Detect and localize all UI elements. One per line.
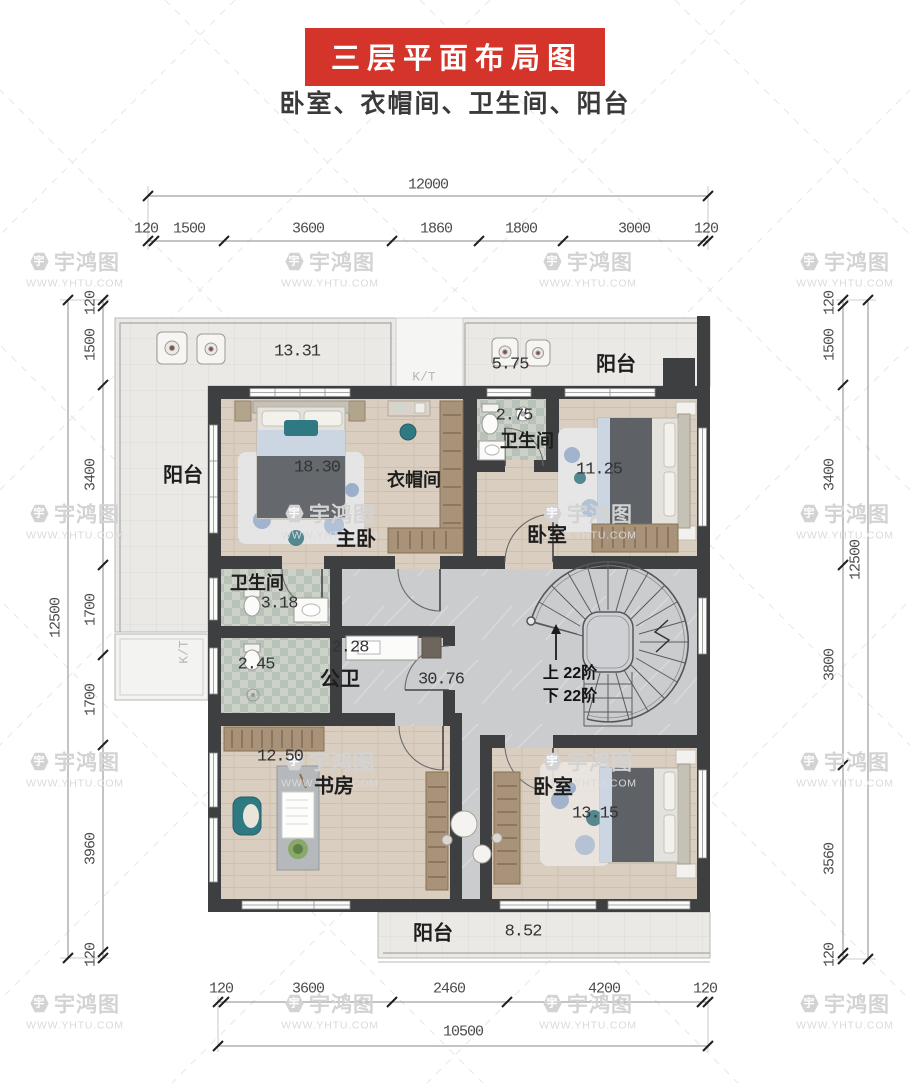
area-balcony-left: 13.31: [274, 343, 320, 362]
area-balcony-top: 5.75: [492, 356, 529, 375]
kt-platform: [115, 634, 208, 700]
dim-left-seg: 3400: [83, 459, 100, 491]
kt-label-top: K/T: [412, 370, 435, 385]
room-label-cloak: 衣帽间: [387, 466, 441, 492]
dim-left-seg: 1500: [83, 329, 100, 361]
dim-right-seg: 3400: [822, 459, 839, 491]
area-bath-mid: 3.18: [261, 595, 298, 614]
dim-right-seg: 120: [822, 943, 839, 967]
dim-top-seg: 1860: [420, 221, 452, 238]
area-bed-bottom: 13.15: [572, 805, 618, 824]
dim-bottom-seg: 120: [693, 981, 717, 998]
dim-right-seg: 120: [822, 291, 839, 315]
dim-top-seg: 120: [134, 221, 158, 238]
floorplan-drawing: [0, 0, 910, 1083]
dim-left-seg: 120: [83, 291, 100, 315]
dim-right-seg: 3800: [822, 649, 839, 681]
dim-left-overall: 12500: [48, 598, 65, 638]
bed-headboard: [678, 764, 690, 864]
room-label-bath-top: 卫生间: [500, 427, 554, 453]
shelf: [426, 772, 448, 890]
area-master: 18.30: [294, 459, 340, 478]
dim-right-seg: 1500: [822, 329, 839, 361]
area-shower-room: 2.45: [238, 656, 275, 675]
bed-blanket: [612, 768, 654, 862]
stairs-down-label: 下 22阶: [543, 682, 597, 706]
wardrobe: [494, 772, 520, 884]
shower-room-floor: [221, 638, 330, 713]
area-pub-bath: 2.28: [332, 639, 369, 658]
dim-top-seg: 3000: [618, 221, 650, 238]
area-bed-right: 11.25: [576, 461, 622, 480]
page-title: 三层平面布局图: [305, 28, 605, 86]
dim-left-seg: 1700: [83, 594, 100, 626]
dim-top-seg: 3600: [292, 221, 324, 238]
dim-top-overall: 12000: [408, 177, 448, 194]
dim-left-seg: 1700: [83, 684, 100, 716]
room-label-study: 书房: [314, 770, 354, 799]
nightstand: [235, 401, 251, 421]
room-label-balcony-top: 阳台: [596, 348, 636, 377]
room-label-bed-right: 卧室: [527, 519, 567, 548]
teal-throw: [284, 420, 318, 436]
dim-right-overall: 12500: [848, 540, 865, 580]
dim-bottom-seg: 4200: [588, 981, 620, 998]
room-label-pub-bath: 公卫: [320, 663, 360, 692]
area-balcony-bottom: 8.52: [505, 923, 542, 942]
bed-headboard: [678, 414, 690, 528]
dim-top-seg: 1800: [505, 221, 537, 238]
area-study: 12.50: [257, 748, 303, 767]
floorplan-page: 宇宇鸿图WWW.YHTU.COM 宇宇鸿图WWW.YHTU.COM 宇宇鸿图WW…: [0, 0, 910, 1083]
area-bath-top: 2.75: [496, 407, 533, 426]
dim-bottom-seg: 120: [209, 981, 233, 998]
room-label-bath-mid: 卫生间: [230, 569, 284, 595]
page-subtitle: 卧室、衣帽间、卫生间、阳台: [279, 84, 630, 120]
room-label-balcony-bottom: 阳台: [413, 917, 453, 946]
room-label-balcony-left: 阳台: [163, 459, 203, 488]
dim-top-seg: 1500: [173, 221, 205, 238]
dim-left-seg: 3960: [83, 833, 100, 865]
dim-top-seg: 120: [694, 221, 718, 238]
dim-bottom-seg: 2460: [433, 981, 465, 998]
room-label-bed-bottom: 卧室: [533, 771, 573, 800]
dim-bottom-overall: 10500: [443, 1024, 483, 1041]
nightstand: [349, 401, 365, 421]
area-hall: 30.76: [418, 671, 464, 690]
kt-label-left: K/T: [177, 640, 192, 663]
room-label-master: 主卧: [336, 523, 376, 552]
dim-right-seg: 3560: [822, 843, 839, 875]
dim-bottom-seg: 3600: [292, 981, 324, 998]
dim-left-seg: 120: [83, 943, 100, 967]
stairs-up-label: 上 22阶: [543, 659, 597, 683]
